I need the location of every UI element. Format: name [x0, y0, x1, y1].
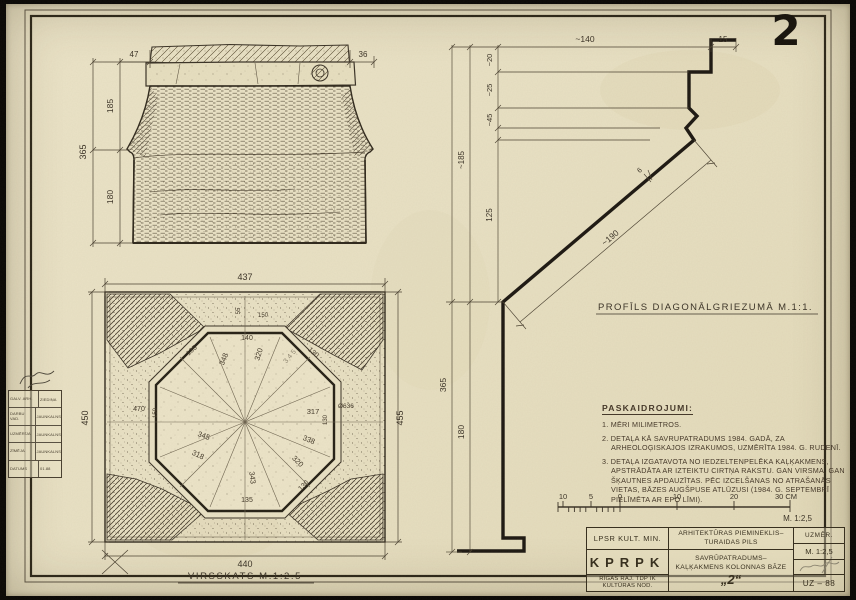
- stamp-row: UZMĒRĪJA JAUNKALNS: [9, 426, 61, 443]
- stamp-row: DATUMS 01.88: [9, 461, 61, 477]
- stamp-row: GALV. ARH. ZIEDIŅA: [9, 391, 61, 408]
- stamp-label: ZĪMĒJA: [9, 443, 36, 459]
- signature-cell: [794, 560, 844, 575]
- stamp-row: ZĪMĒJA JAUNKALNS: [9, 443, 61, 460]
- org-code: KPRPK: [587, 550, 668, 575]
- scale-value: M. 1:2,5: [794, 544, 844, 560]
- drawing-subject: SAVRŪPATRADUMS– KAĻĶAKMENS KOLONNAS BĀZE…: [669, 550, 793, 591]
- stamp-value: JAUNKALNS: [36, 408, 61, 424]
- measured-label: UZMĒR.: [794, 528, 844, 544]
- monument-name: ARHITEKTŪRAS PIEMINEKLIS– TURAIDAS PILS: [669, 528, 793, 550]
- stamp-row: DARBU VAD. JAUNKALNS: [9, 408, 61, 425]
- subject-number: „2“: [721, 573, 741, 586]
- note-item: 3. DETAĻA IZGATAVOTA NO IEDZELTENPELĒKA …: [602, 457, 850, 505]
- notes-heading: PASKAIDROJUMI:: [602, 403, 693, 415]
- monument-line1: ARHITEKTŪRAS PIEMINEKLIS–: [678, 530, 783, 538]
- org-department: RĪGAS RAJ. TDP IK KULTŪRAS NOD.: [587, 575, 668, 591]
- title-block-scale-column: UZMĒR. M. 1:2,5 UZ – 88: [794, 528, 844, 591]
- subject-line1: SAVRŪPATRADUMS–: [695, 555, 767, 564]
- notes-block: PASKAIDROJUMI: 1. MĒRI MILIMETROS. 2. DE…: [602, 398, 850, 508]
- note-item: 1. MĒRI MILIMETROS.: [602, 420, 850, 430]
- stamp-label: DATUMS: [9, 461, 39, 477]
- title-block-subject-column: ARHITEKTŪRAS PIEMINEKLIS– TURAIDAS PILS …: [669, 528, 794, 591]
- stamp-label: UZMĒRĪJA: [9, 426, 36, 442]
- sheet-code: UZ – 88: [794, 575, 844, 591]
- stamp-value: JAUNKALNS: [36, 443, 61, 459]
- margin-stamp-block: GALV. ARH. ZIEDIŅA DARBU VAD. JAUNKALNS …: [8, 390, 62, 478]
- grain-overlay: [0, 0, 856, 600]
- drawing-canvas: 2 47: [0, 0, 856, 600]
- stamp-value: 01.88: [39, 461, 61, 477]
- title-block-org-column: LPSR KULT. MIN. KPRPK RĪGAS RAJ. TDP IK …: [587, 528, 669, 591]
- org-department-line1: RĪGAS RAJ. TDP IK: [599, 576, 656, 583]
- stamp-value: ZIEDIŅA: [39, 391, 61, 407]
- scanned-drawing-sheet: { "sheet": { "number": "2" }, "elevation…: [0, 0, 856, 600]
- org-ministry: LPSR KULT. MIN.: [587, 528, 668, 550]
- stamp-label: GALV. ARH.: [9, 391, 39, 407]
- stamp-value: JAUNKALNS: [36, 426, 61, 442]
- title-block: LPSR KULT. MIN. KPRPK RĪGAS RAJ. TDP IK …: [586, 527, 845, 592]
- note-item: 2. DETAĻA KĀ SAVRUPATRADUMS 1984. GADĀ, …: [602, 434, 850, 453]
- stamp-label: DARBU VAD.: [9, 408, 36, 424]
- org-department-line2: KULTŪRAS NOD.: [603, 583, 653, 590]
- monument-line2: TURAIDAS PILS: [704, 539, 757, 547]
